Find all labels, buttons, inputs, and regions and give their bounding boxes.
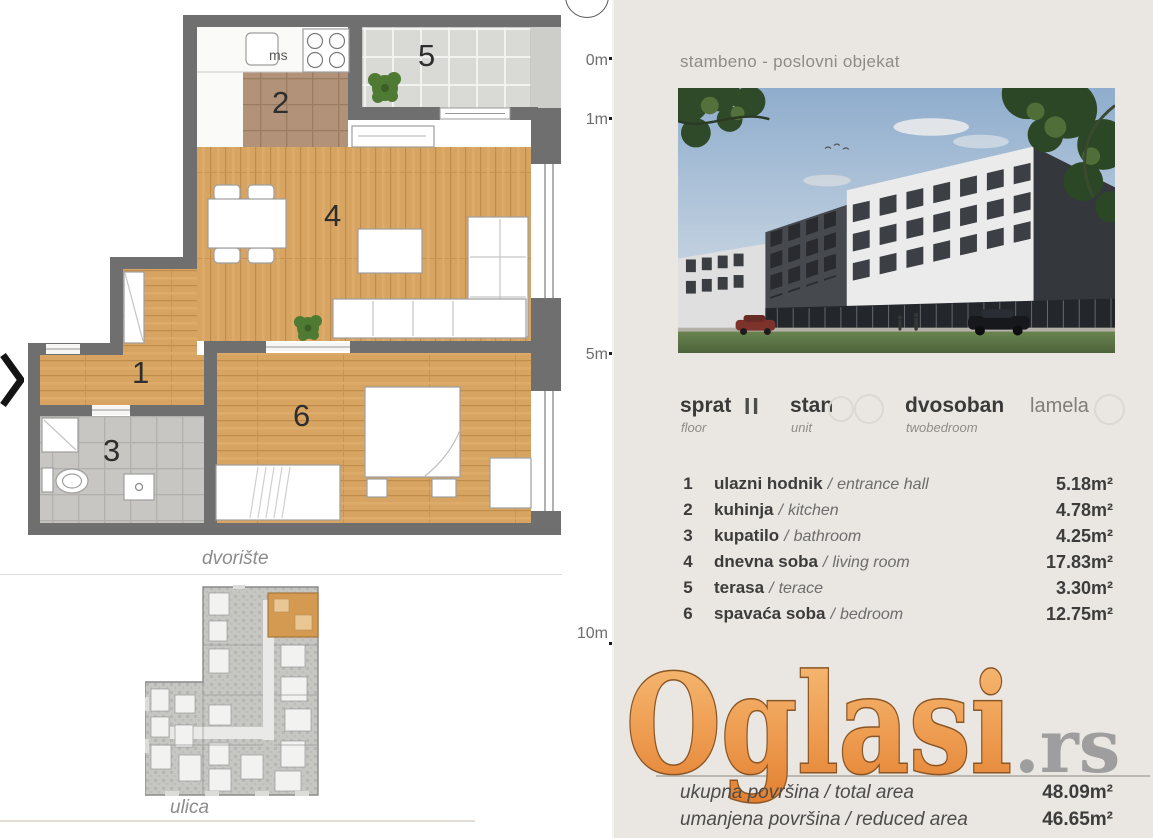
room-area: 3.30m² (950, 575, 1113, 601)
room-name: spavaća soba (714, 604, 826, 623)
room-area: 4.25m² (950, 523, 1113, 549)
floor-value: II (744, 393, 761, 420)
room-number-4: 4 (324, 198, 341, 234)
bed (365, 387, 460, 477)
room-name-en: living room (832, 554, 909, 571)
room-num: 4 (678, 549, 698, 575)
total-area-value: 48.09m² (950, 779, 1113, 806)
chair (248, 185, 274, 200)
room-area: 4.78m² (950, 497, 1113, 523)
plant-terrace (368, 72, 401, 103)
kitchen-appliance-label: ms (269, 47, 288, 63)
hall-floor (40, 355, 204, 405)
room-area: 17.83m² (950, 549, 1113, 575)
type-sublabel: twobedroom (906, 420, 978, 435)
listing-image: 1 2 3 4 5 6 ms dvorište (0, 0, 1153, 838)
room-row: 6 spavaća soba/bedroom 12.75m² (0, 601, 1153, 627)
terrace-edge (531, 27, 561, 108)
room-num: 5 (678, 575, 698, 601)
room-num: 1 (678, 471, 698, 497)
room-area: 5.18m² (950, 471, 1113, 497)
room-number-2: 2 (272, 85, 289, 121)
plant-living (294, 315, 322, 341)
total-label-en: total area (835, 782, 914, 803)
room-name: kupatilo (714, 526, 779, 545)
dining-table (208, 199, 286, 248)
type-label: dvosoban (905, 394, 1004, 418)
unit-label: stan (790, 394, 833, 418)
room-number-3: 3 (103, 433, 120, 469)
room-num: 3 (678, 523, 698, 549)
total-label: ukupna površina (680, 782, 819, 803)
ruler-mark-0m: 0m (566, 52, 608, 70)
room-name-en: terace (779, 580, 823, 597)
building-photo (678, 88, 1115, 353)
chevron-right-icon[interactable] (0, 352, 24, 408)
room-num: 2 (678, 497, 698, 523)
room-row: 2 kuhinja/kitchen 4.78m² (0, 497, 1153, 523)
floor-plan (0, 0, 562, 545)
room-name: kuhinja (714, 500, 774, 519)
oglasi-tld-text: .rs (1014, 704, 1120, 790)
room-number-6: 6 (293, 398, 310, 434)
floor-sublabel: floor (681, 420, 706, 435)
unit-sublabel: unit (791, 420, 812, 435)
north-circle (565, 0, 609, 18)
room-num: 6 (678, 601, 698, 627)
unit-value-blur (828, 396, 854, 422)
ruler-mark-1m: 1m (566, 111, 608, 129)
room-number-5: 5 (418, 38, 435, 74)
chair (248, 248, 274, 263)
room-row: 3 kupatilo/bathroom 4.25m² (0, 523, 1153, 549)
floor-label: sprat (680, 394, 731, 418)
unit-value-blur (854, 394, 884, 424)
room-name-en: entrance hall (837, 476, 929, 493)
room-name-en: kitchen (788, 502, 839, 519)
room-name-en: bathroom (794, 528, 862, 545)
chair (214, 248, 240, 263)
kitchen-tiles (243, 72, 348, 147)
room-row: 5 terasa/terace 3.30m² (0, 575, 1153, 601)
room-row: 1 ulazni hodnik/entrance hall 5.18m² (0, 471, 1153, 497)
lamela-value-blur (1094, 394, 1125, 425)
total-area-row: ukupna površina/total area 48.09m² (0, 779, 1153, 806)
room-row: 4 dnevna soba/living room 17.83m² (0, 549, 1153, 575)
ruler-mark-10m: 10m (566, 625, 608, 643)
building-type-header: stambeno - poslovni objekat (680, 52, 900, 72)
coffee-table (358, 229, 422, 273)
room-name: terasa (714, 578, 764, 597)
reduced-area-row: umanjena površina/reduced area 46.65m² (0, 806, 1153, 833)
room-name-en: bedroom (840, 606, 903, 623)
ruler-mark-5m: 5m (566, 346, 608, 364)
reduced-label: umanjena površina (680, 809, 841, 830)
chair (214, 185, 240, 200)
room-name: ulazni hodnik (714, 474, 823, 493)
room-number-1: 1 (132, 355, 149, 391)
room-name: dnevna soba (714, 552, 818, 571)
room-area: 12.75m² (950, 601, 1113, 627)
lamela-label: lamela (1030, 395, 1089, 418)
sofa-seat (333, 299, 526, 338)
reduced-area-value: 46.65m² (950, 806, 1113, 833)
